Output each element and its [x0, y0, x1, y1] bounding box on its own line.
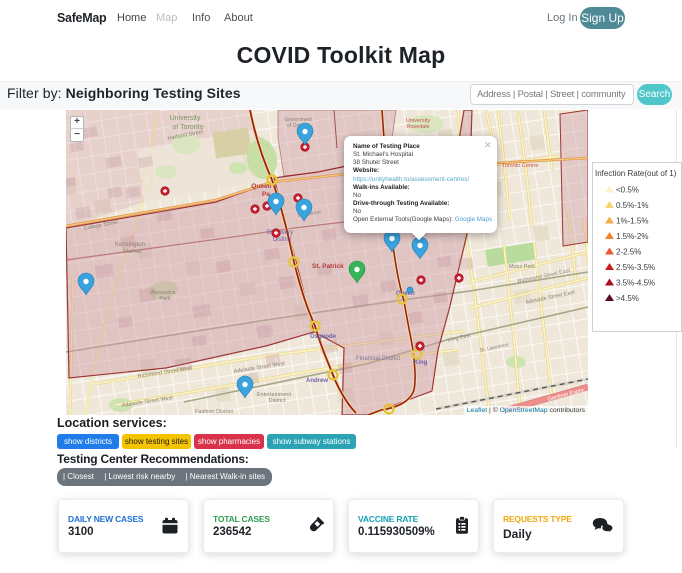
- svg-text:2-2.5%: 2-2.5%: [616, 248, 641, 257]
- svg-text:3.5%-4.5%: 3.5%-4.5%: [616, 279, 655, 288]
- svg-text:Park: Park: [159, 296, 171, 302]
- svg-text:University: University: [170, 115, 201, 122]
- svg-text:Moss Park: Moss Park: [509, 264, 535, 270]
- svg-text:>4.5%: >4.5%: [616, 294, 639, 303]
- svg-text:Kensington: Kensington: [115, 242, 145, 248]
- svg-text:King: King: [414, 360, 428, 366]
- svg-text:<0.5%: <0.5%: [616, 186, 639, 195]
- svg-text:Financial District: Financial District: [356, 356, 400, 362]
- svg-text:2.5%-3.5%: 2.5%-3.5%: [616, 263, 655, 272]
- svg-text:District: District: [273, 237, 292, 243]
- svg-text:Andrew: Andrew: [306, 378, 328, 384]
- svg-text:Osgoode: Osgoode: [310, 334, 337, 340]
- svg-text:Market: Market: [123, 249, 142, 255]
- svg-text:District: District: [269, 398, 286, 404]
- svg-text:0.5%-1%: 0.5%-1%: [616, 201, 648, 210]
- svg-text:Toronto Centre: Toronto Centre: [502, 163, 538, 169]
- svg-text:St. Patrick: St. Patrick: [312, 263, 344, 270]
- svg-text:1.5%-2%: 1.5%-2%: [616, 232, 648, 241]
- svg-text:Fashion District: Fashion District: [195, 409, 233, 415]
- svg-text:1%-1.5%: 1%-1.5%: [616, 217, 648, 226]
- svg-text:Rosedale: Rosedale: [406, 124, 429, 130]
